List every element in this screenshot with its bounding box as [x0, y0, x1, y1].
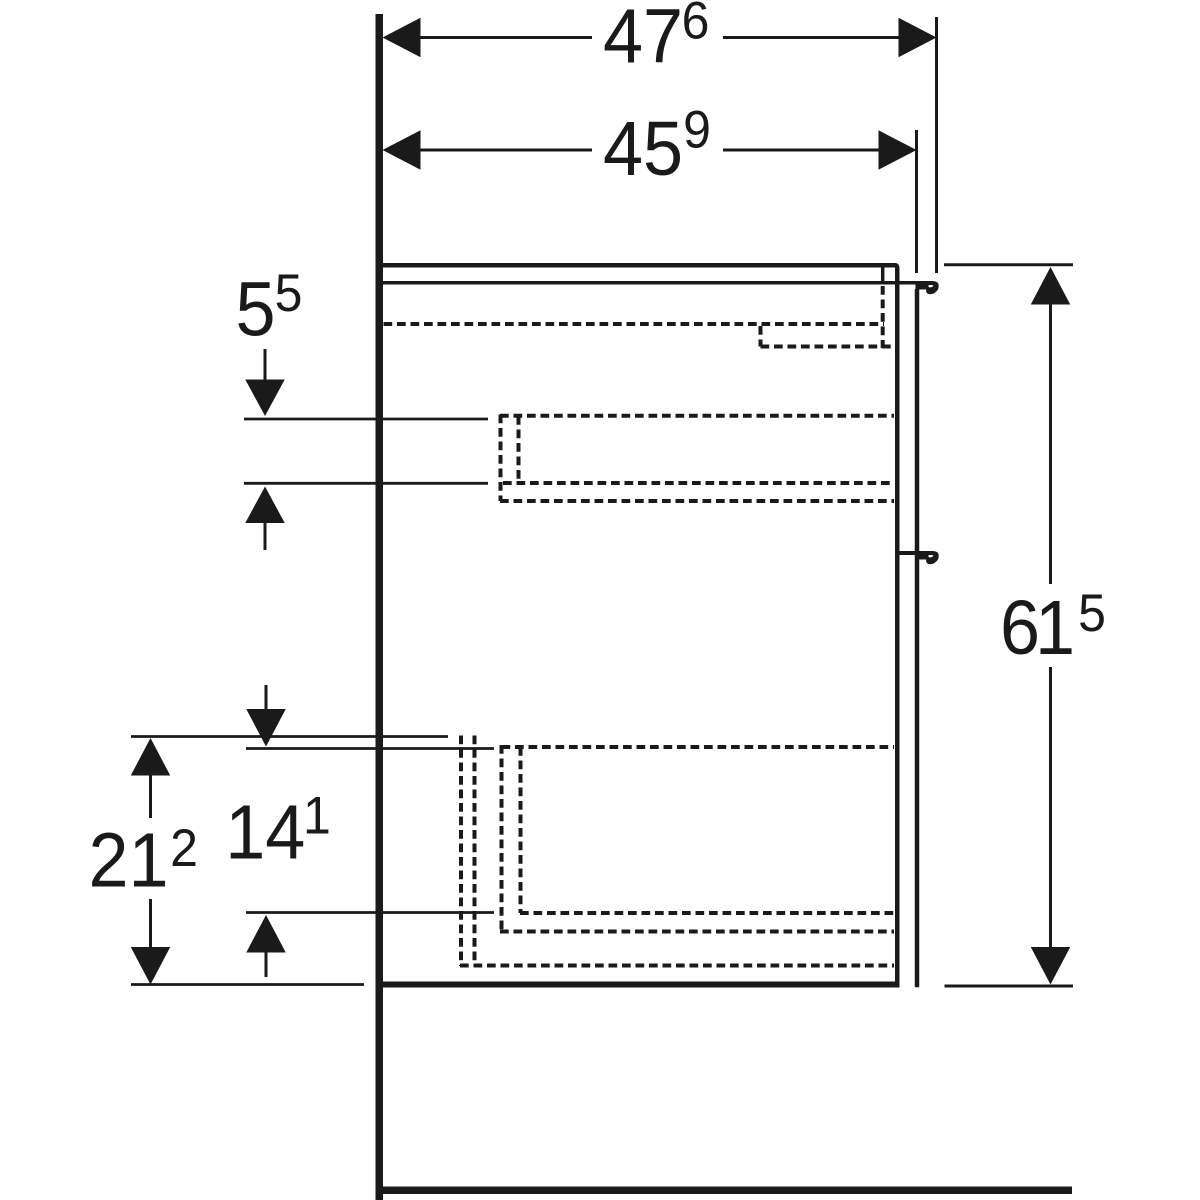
svg-text:47: 47	[603, 0, 683, 79]
svg-text:2: 2	[170, 818, 198, 878]
svg-text:14: 14	[225, 789, 305, 875]
svg-text:5: 5	[1078, 583, 1106, 643]
svg-text:9: 9	[683, 99, 711, 159]
svg-text:45: 45	[603, 106, 683, 192]
svg-text:5: 5	[275, 262, 303, 322]
svg-text:5: 5	[235, 267, 275, 353]
svg-text:1: 1	[303, 785, 331, 845]
svg-text:61: 61	[1000, 585, 1072, 671]
svg-text:6: 6	[682, 0, 710, 50]
svg-text:21: 21	[88, 817, 168, 903]
